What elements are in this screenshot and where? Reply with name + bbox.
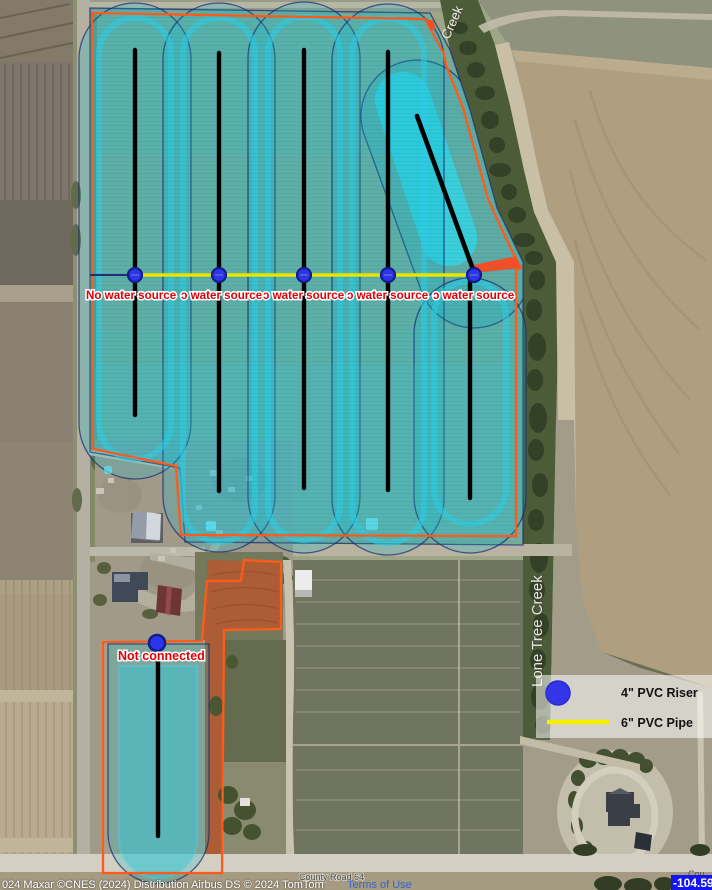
svg-text:6" PVC Pipe: 6" PVC Pipe <box>621 716 693 730</box>
svg-text:ɔ water source: ɔ water source <box>433 289 515 302</box>
svg-text:Lone Tree Creek: Lone Tree Creek <box>529 575 546 687</box>
svg-text:Terms of Use: Terms of Use <box>347 879 412 890</box>
svg-text:-104.598: -104.598 <box>673 876 712 890</box>
svg-text:4" PVC Riser: 4" PVC Riser <box>621 686 698 700</box>
svg-text:024 Maxar ©CNES (2024) Distrib: 024 Maxar ©CNES (2024) Distribution Airb… <box>2 879 324 890</box>
svg-text:ɔ water source: ɔ water source <box>347 289 429 302</box>
svg-text:ɔ water source: ɔ water source <box>181 289 263 302</box>
svg-text:No water source: No water source <box>86 289 177 302</box>
svg-text:ɔ water source: ɔ water source <box>263 289 345 302</box>
svg-text:Not connected: Not connected <box>118 649 205 663</box>
